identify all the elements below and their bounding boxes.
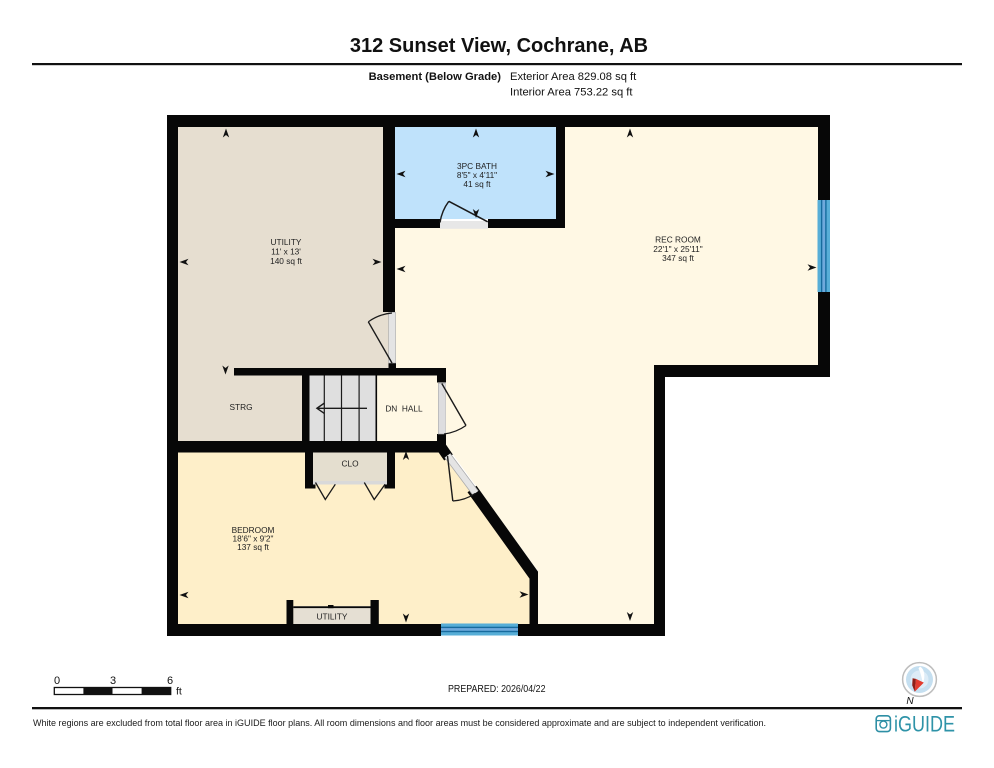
svg-text:Basement (Below Grade): Basement (Below Grade): [369, 71, 502, 83]
svg-text:0: 0: [54, 675, 60, 687]
svg-text:White regions are excluded fro: White regions are excluded from total fl…: [33, 718, 766, 729]
svg-text:41 sq ft: 41 sq ft: [463, 179, 491, 189]
svg-text:STRG: STRG: [229, 402, 252, 412]
svg-text:347 sq ft: 347 sq ft: [662, 253, 695, 263]
svg-text:DN HALL: DN HALL: [385, 404, 423, 414]
svg-text:UTILITY: UTILITY: [317, 612, 348, 622]
svg-text:ft: ft: [176, 686, 182, 698]
svg-text:Interior Area 753.22 sq ft: Interior Area 753.22 sq ft: [510, 87, 633, 99]
svg-text:UTILITY: UTILITY: [271, 237, 302, 247]
svg-text:11' x 13': 11' x 13': [271, 247, 301, 257]
svg-text:140 sq ft: 140 sq ft: [270, 256, 303, 266]
svg-text:REC ROOM: REC ROOM: [655, 235, 701, 245]
svg-text:Exterior Area 829.08 sq ft: Exterior Area 829.08 sq ft: [510, 71, 637, 83]
svg-text:137 sq ft: 137 sq ft: [237, 542, 270, 552]
svg-text:3: 3: [110, 675, 116, 687]
svg-text:iGUIDE: iGUIDE: [894, 712, 955, 737]
svg-text:N: N: [906, 696, 914, 707]
svg-text:CLO: CLO: [341, 459, 359, 469]
svg-text:PREPARED: 2026/04/22: PREPARED: 2026/04/22: [448, 684, 546, 695]
svg-text:6: 6: [167, 675, 173, 687]
svg-text:312 Sunset View, Cochrane, AB: 312 Sunset View, Cochrane, AB: [350, 35, 648, 57]
